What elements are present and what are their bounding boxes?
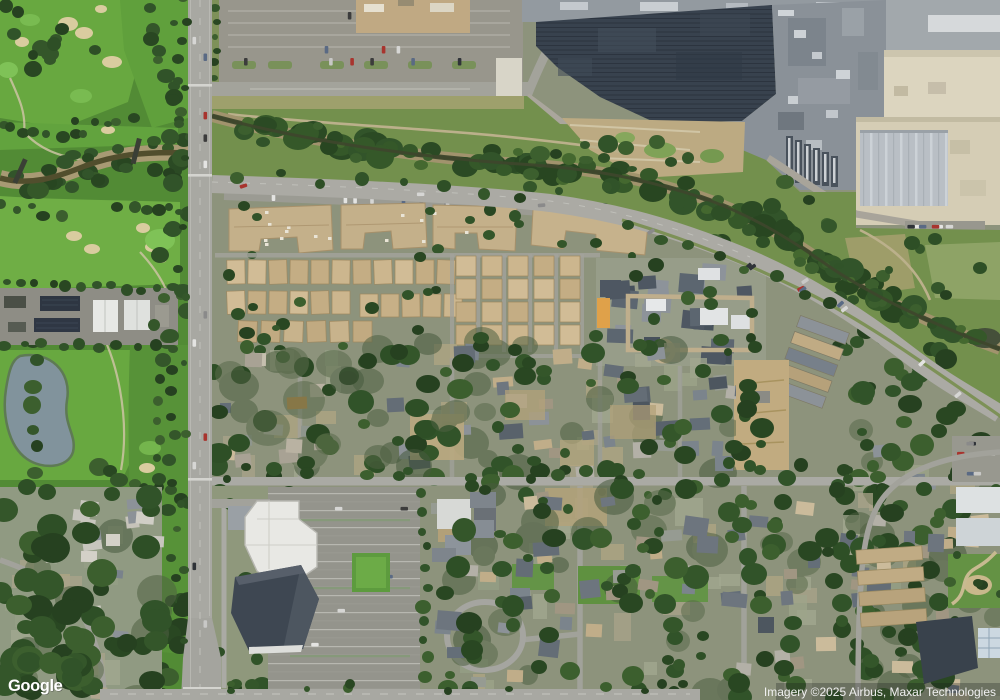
svg-text:Google: Google	[8, 677, 63, 695]
svg-text:Imagery ©2025 Airbus, Maxar Te: Imagery ©2025 Airbus, Maxar Technologies	[764, 685, 996, 699]
